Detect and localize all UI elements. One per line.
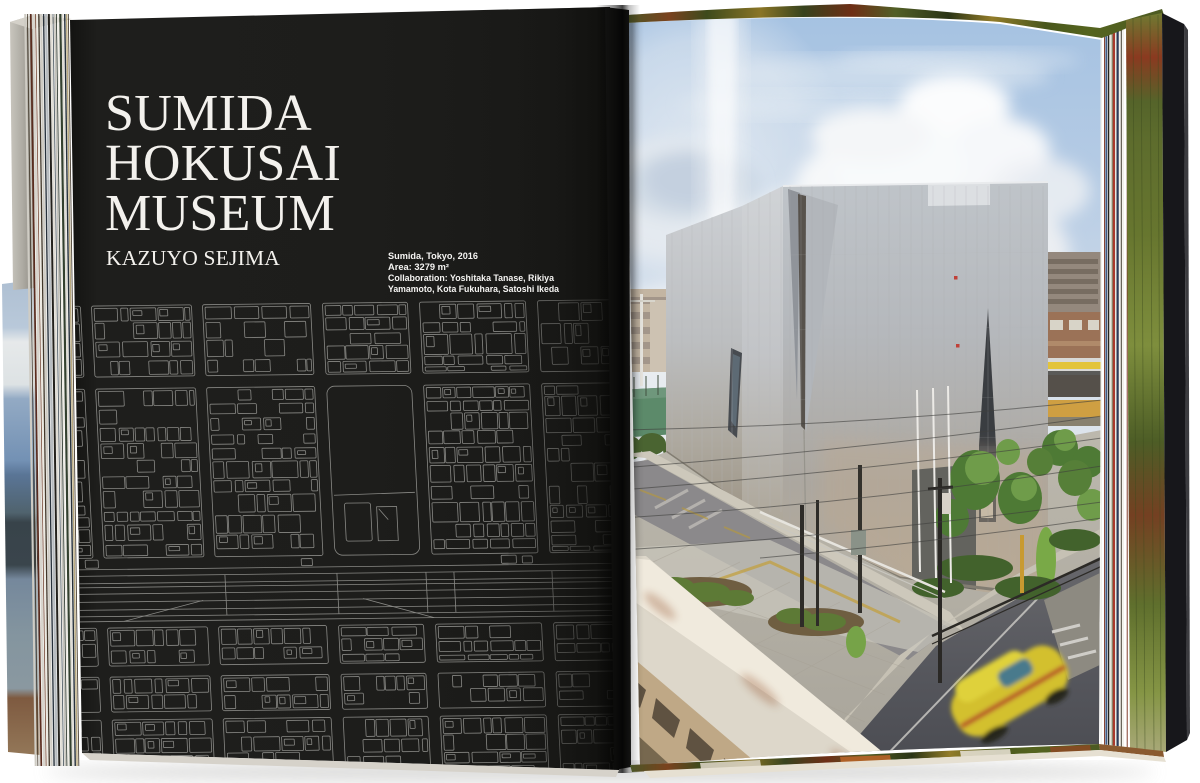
svg-text:Collaboration: Yoshitaka Tanas: Collaboration: Yoshitaka Tanase, Rikiya: [388, 273, 555, 283]
svg-text:HOKUSAI: HOKUSAI: [105, 135, 341, 192]
svg-text:Area: 3279 m²: Area: 3279 m²: [388, 262, 449, 272]
svg-text:SUMIDA: SUMIDA: [105, 85, 312, 142]
svg-text:Yamamoto, Kota Fukuhara, Satos: Yamamoto, Kota Fukuhara, Satoshi Ikeda: [388, 284, 560, 294]
svg-text:MUSEUM: MUSEUM: [105, 185, 335, 242]
svg-text:Sumida, Tokyo, 2016: Sumida, Tokyo, 2016: [388, 251, 478, 261]
svg-text:KAZUYO SEJIMA: KAZUYO SEJIMA: [106, 246, 280, 270]
